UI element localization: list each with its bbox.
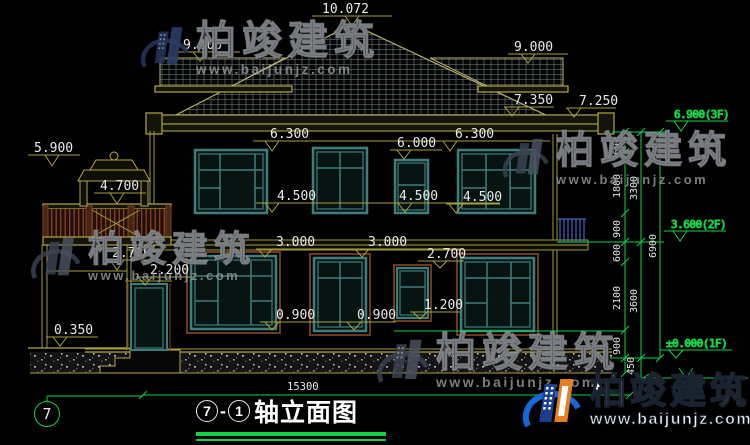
svg-text:1800: 1800	[612, 174, 623, 198]
svg-text:4.700: 4.700	[100, 179, 139, 194]
svg-text:2100: 2100	[612, 286, 623, 310]
level-marker-finial: 5.900	[28, 141, 80, 166]
svg-text:2.700: 2.700	[112, 246, 151, 261]
level-marker-door-head: 2.200	[136, 263, 192, 285]
svg-text:±0.000(1F): ±0.000(1F)	[666, 337, 727, 350]
svg-text:0.900: 0.900	[276, 308, 315, 323]
svg-text:6.000: 6.000	[397, 136, 436, 151]
porch-railing-top	[43, 204, 171, 209]
title-axis-end: 1	[228, 400, 250, 422]
svg-text:7.350: 7.350	[514, 93, 553, 108]
svg-text:15300: 15300	[287, 381, 319, 393]
svg-text:6.300: 6.300	[455, 127, 494, 142]
level-marker-porch-floor: 0.350	[46, 323, 98, 346]
drawing-title-block: 7 - 1 轴立面图	[196, 393, 386, 441]
cornice	[146, 113, 614, 134]
svg-text:6900: 6900	[648, 234, 659, 258]
svg-text:2.700: 2.700	[427, 247, 466, 262]
level-marker-1f: ±0.000(1F)	[660, 337, 732, 358]
svg-text:900: 900	[612, 220, 623, 238]
elevation-canvas: 10.072 9.000 9.000 7.350 7.250 5.900 4.7…	[0, 0, 750, 445]
balcony-railing-right	[558, 219, 586, 242]
svg-text:600: 600	[612, 244, 623, 262]
porch-railing-slats	[43, 209, 171, 237]
svg-text:9.000: 9.000	[514, 40, 553, 55]
right-wing-eave	[478, 86, 568, 92]
level-marker-railing: 4.700	[94, 179, 146, 204]
entry-door	[125, 281, 172, 350]
svg-text:7.250: 7.250	[579, 94, 618, 109]
porch-railing-base	[43, 237, 171, 245]
svg-text:10.072: 10.072	[322, 2, 369, 17]
svg-text:4.500: 4.500	[463, 190, 502, 205]
axis-bubble-left: 7	[35, 402, 60, 427]
svg-text:2.200: 2.200	[150, 263, 189, 278]
svg-text:3300: 3300	[629, 176, 640, 200]
title-underline-thin	[196, 439, 386, 441]
svg-text:4.500: 4.500	[399, 189, 438, 204]
svg-text:0.350: 0.350	[54, 323, 93, 338]
svg-text:900: 900	[612, 337, 623, 355]
level-marker-peak: 10.072	[312, 2, 392, 26]
svg-text:3.000: 3.000	[368, 235, 407, 250]
svg-text:4.500: 4.500	[277, 189, 316, 204]
svg-text:1.200: 1.200	[424, 298, 463, 313]
title-axis-start: 7	[196, 400, 218, 422]
window-1f-left	[187, 252, 280, 333]
svg-text:5.900: 5.900	[34, 141, 73, 156]
svg-text:3.600(2F): 3.600(2F)	[671, 218, 726, 231]
window-2f-left	[195, 150, 267, 213]
svg-text:600: 600	[612, 137, 623, 155]
drawing-title: 轴立面图	[254, 393, 358, 429]
ground	[30, 349, 612, 373]
title-underline-thick	[196, 432, 386, 436]
level-marker-outdoor-ground	[640, 368, 748, 378]
svg-text:6.300: 6.300	[270, 127, 309, 142]
level-marker-2f: 3.600(2F)	[664, 218, 726, 241]
svg-text:0.900: 0.900	[357, 308, 396, 323]
porch-column	[42, 245, 47, 348]
svg-text:9.000: 9.000	[183, 38, 222, 53]
svg-text:450: 450	[626, 357, 637, 375]
cad-elevation-drawing: 10.072 9.000 9.000 7.350 7.250 5.900 4.7…	[0, 0, 750, 445]
svg-text:3.000: 3.000	[276, 235, 315, 250]
svg-text:6.900(3F): 6.900(3F)	[674, 108, 729, 121]
level-marker-lintel2f-small: 6.000	[390, 136, 442, 159]
window-1f-right	[457, 254, 538, 335]
left-wing-eave	[155, 86, 292, 92]
title-axis-separator: -	[220, 401, 226, 422]
level-marker-3f: 6.900(3F)	[666, 108, 729, 131]
svg-text:7: 7	[42, 405, 51, 423]
svg-text:3600: 3600	[629, 289, 640, 313]
